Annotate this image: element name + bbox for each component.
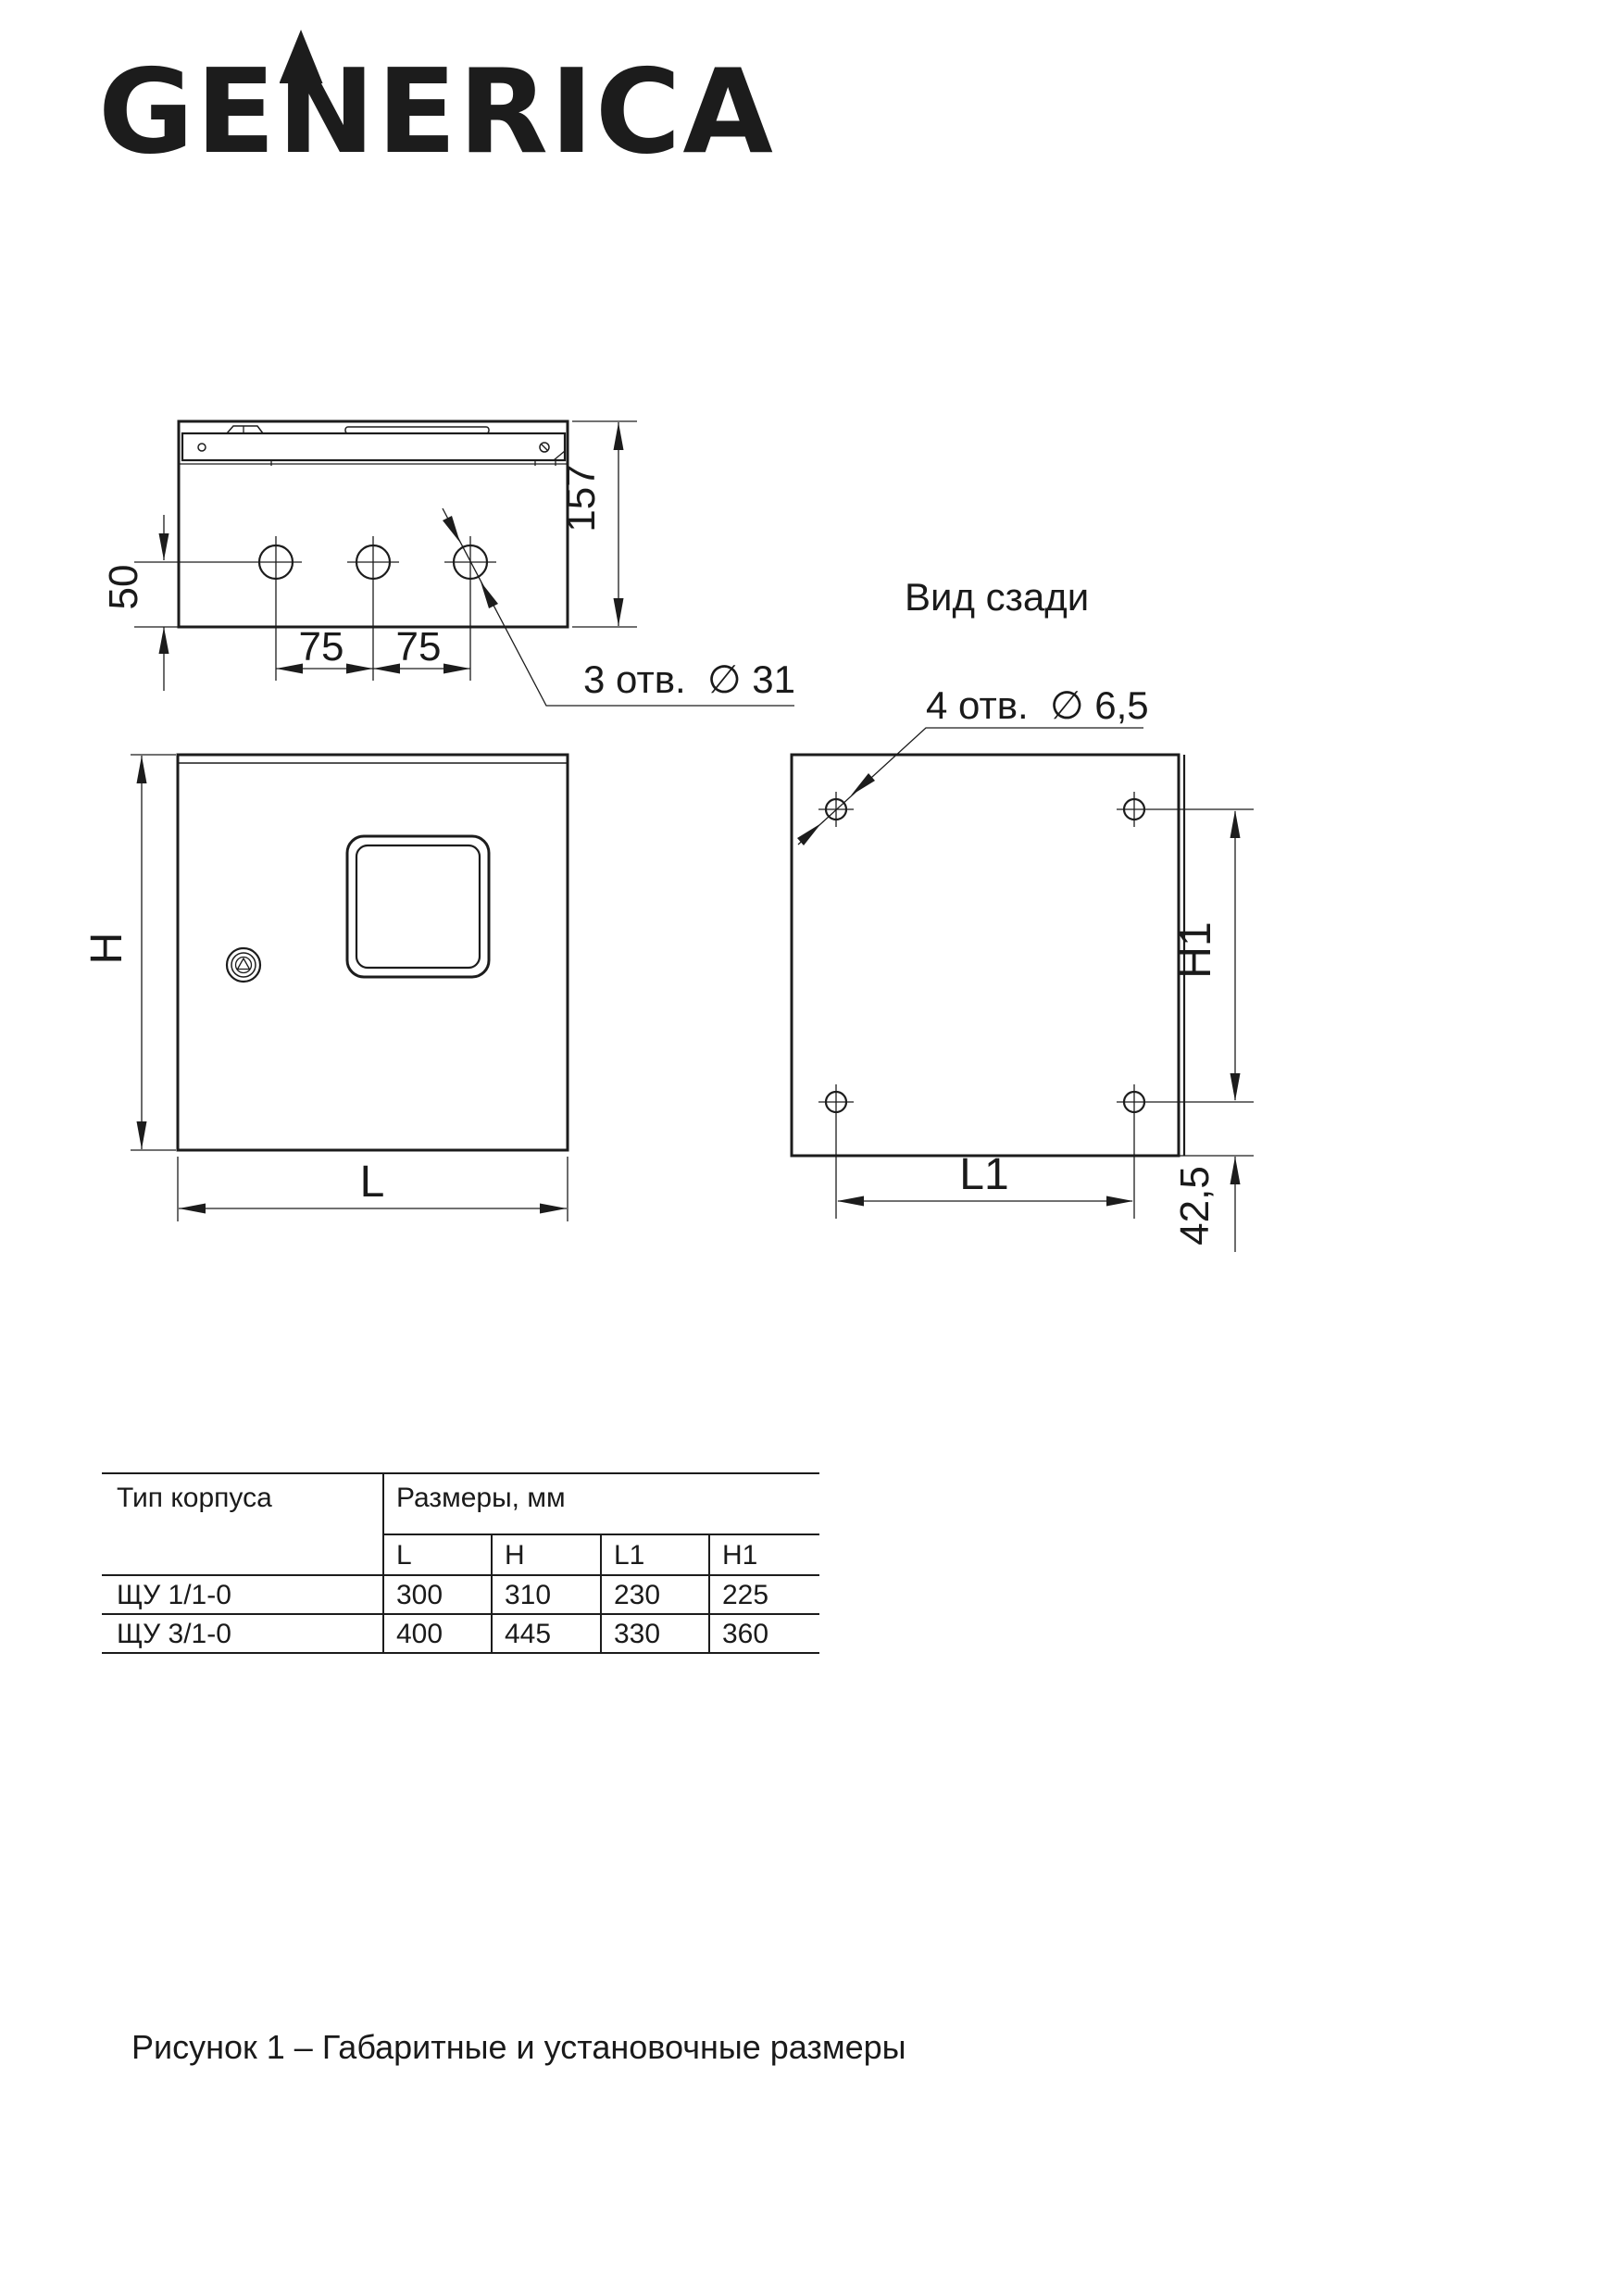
dim-label-H: H: [82, 933, 131, 965]
rear-view-drawing: Вид сзади 4 отв. ∅ 6,5 H1: [792, 575, 1254, 1252]
table-cell: 230: [602, 1574, 710, 1613]
dim-label-L: L: [360, 1158, 385, 1207]
table-cell: 445: [493, 1613, 602, 1652]
hinge-pin-icon: [198, 444, 206, 451]
table-cell: 300: [384, 1574, 493, 1613]
dim-label-75-left: 75: [299, 624, 344, 670]
table-subheader-L1: L1: [602, 1535, 710, 1574]
table-cell: 400: [384, 1613, 493, 1652]
dim-label-L1: L1: [959, 1150, 1008, 1199]
table-cell: 330: [602, 1613, 710, 1652]
table-cell: 225: [710, 1574, 819, 1613]
latch-tab: [227, 426, 263, 433]
dim-label-157: 157: [558, 464, 604, 532]
dim-label-42-5: 42,5: [1172, 1166, 1218, 1246]
rear-view-title: Вид сзади: [905, 575, 1089, 619]
top-view-door-edge: [182, 433, 565, 460]
dimensions-table: Тип корпуса Размеры, мм L H L1 H1 ЩУ 1/1…: [102, 1472, 819, 1654]
table-row-type: ЩУ 1/1-0: [102, 1574, 384, 1613]
front-view-drawing: H L: [82, 755, 568, 1221]
rear-view-body-outline: [792, 755, 1179, 1156]
dim-label-75-right: 75: [396, 624, 442, 670]
holes-note-rear-view: 4 отв. ∅ 6,5: [926, 683, 1149, 727]
door-lock-icon: [227, 948, 260, 982]
front-view-body-outline: [178, 755, 568, 1150]
meter-window-outer: [347, 836, 489, 977]
table-header-type: Тип корпуса: [102, 1474, 384, 1574]
top-view-drawing: 50 75 75 157 3 отв. ∅ 31: [101, 421, 795, 706]
table-subheader-L: L: [384, 1535, 493, 1574]
dim-label-H1: H1: [1171, 921, 1220, 978]
table-cell: 310: [493, 1574, 602, 1613]
figure-caption: Рисунок 1 – Габаритные и установочные ра…: [131, 2028, 906, 2067]
table-header-dimensions: Размеры, мм: [384, 1474, 819, 1535]
table-subheader-H: H: [493, 1535, 602, 1574]
meter-window-inner: [356, 845, 480, 968]
table-subheader-H1: H1: [710, 1535, 819, 1574]
holes-note-top-view: 3 отв. ∅ 31: [583, 657, 795, 701]
page: { "logo": { "text": "GENERICA", "part_le…: [0, 0, 1624, 2291]
technical-drawing: 50 75 75 157 3 отв. ∅ 31: [0, 0, 1624, 2291]
table-cell: 360: [710, 1613, 819, 1652]
dim-label-50: 50: [101, 565, 146, 610]
table-row-type: ЩУ 3/1-0: [102, 1613, 384, 1652]
